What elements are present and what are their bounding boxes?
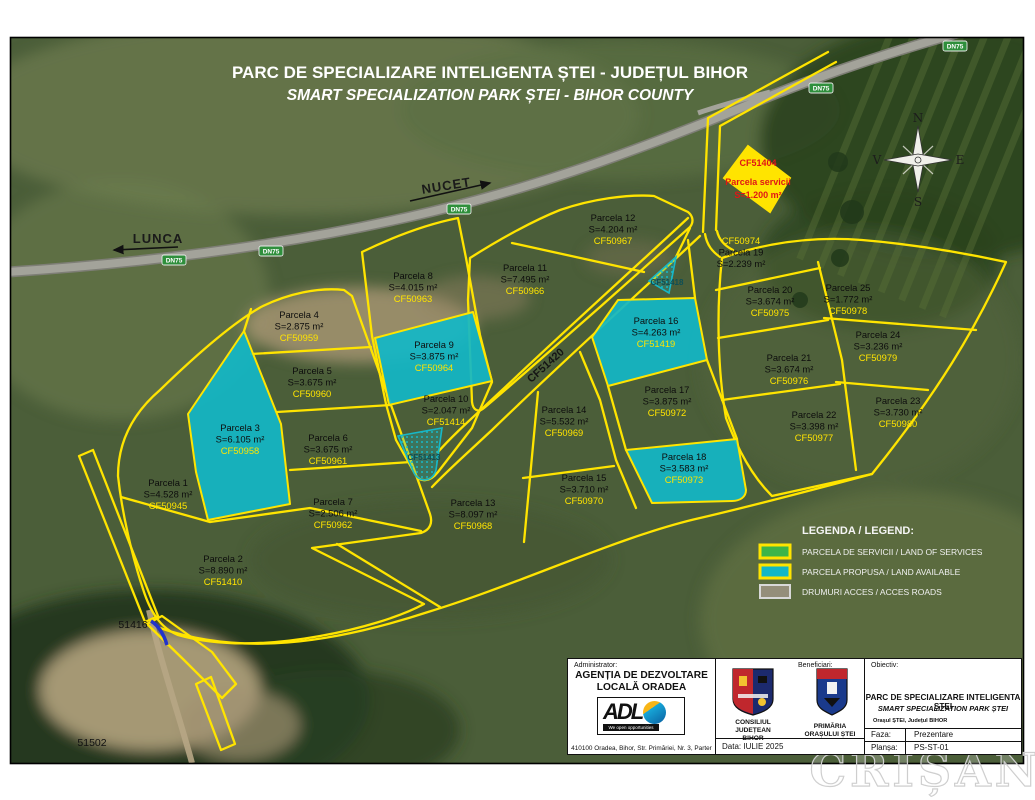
parcel-7-cf: CF50962 [314,519,353,530]
parcel-12-area: S=4.204 m² [589,224,638,235]
parcel-18-area: S=3.583 m² [660,463,709,474]
parcel-25-name: Parcela 25 [826,282,871,293]
parcel-18-cf: CF50973 [665,474,704,485]
adlo-logo: ADL We open opportunities [597,697,685,735]
parcel-6-cf: CF50961 [309,455,348,466]
legend-title: LEGENDA / LEGEND: [802,525,914,537]
date-label: Data: [722,742,741,751]
faza-label: Faza: [871,730,891,739]
parcel-13-area: S=8.097 m² [449,509,498,520]
parcel-16-cf: CF51419 [637,338,676,349]
parcel-2-area: S=8.890 m² [199,565,248,576]
parcel-16-area: S=4.263 m² [632,327,681,338]
dn75-badge-4: DN75 [809,83,833,93]
parcel-3-area: S=6.105 m² [216,434,265,445]
parcel-9-cf: CF50964 [415,362,454,373]
parcel-20-area: S=3.674 m² [746,296,795,307]
dn75-badge-2: DN75 [259,246,283,256]
parcel-10-name: Parcela 10 [424,393,469,404]
map-title-en: SMART SPECIALIZATION PARK ȘTEI - BIHOR C… [287,87,695,104]
parcel-12-cf: CF50967 [594,235,633,246]
service-parcel-area: S=1.200 m² [734,190,781,200]
parcel-6-name: Parcela 6 [308,432,348,443]
parcel-13-name: Parcela 13 [451,497,496,508]
parcel-23-area: S=3.730 m² [874,407,923,418]
administrator-name: AGENȚIA DE DEZVOLTARE LOCALĂ ORADEA [568,670,715,694]
parcel-4-area: S=2.875 m² [275,321,324,332]
parcel-21-name: Parcela 21 [767,352,812,363]
lunca-label: LUNCA [133,231,184,246]
legend-label-available: PARCELA PROPUSA / LAND AVAILABLE [802,567,961,577]
parcel-17-cf: CF50972 [648,407,687,418]
parcel-22-name: Parcela 22 [792,409,837,420]
parcel-6-area: S=3.675 m² [304,444,353,455]
parcel-5-area: S=3.675 m² [288,377,337,388]
parcel-8-area: S=4.015 m² [389,282,438,293]
parcel-4-cf: CF50959 [280,332,319,343]
parcel-25-area: S=1.772 m² [824,294,873,305]
dn75-badge-1: DN75 [162,255,186,265]
administrator-name-line2: LOCALĂ ORADEA [597,682,686,693]
objective-location: Orașul ȘTEI, Județul BIHOR [873,718,947,724]
beneficiary-cell: Beneficiari: CONSILIUL JUDEȚEAN BIHOR PR… [715,659,864,754]
dn75-badge-text: DN75 [947,44,964,51]
parcel-20-name: Parcela 20 [748,284,793,295]
parcel-12-name: Parcela 12 [591,212,636,223]
ref-51416: 51416 [118,619,147,631]
dn75-badge-5: DN75 [943,41,967,51]
parcel-5-name: Parcela 5 [292,365,332,376]
objective-label: Obiectiv: [871,662,898,669]
dn75-badge-text: DN75 [166,258,183,265]
parcel-10-cf: CF51414 [427,416,466,427]
parcel-4-name: Parcela 4 [279,309,319,320]
parcel-24-name: Parcela 24 [856,329,901,340]
parcel-17-name: Parcela 17 [645,384,690,395]
parcel-2-cf: CF51410 [204,576,243,587]
parcel-5-cf: CF50960 [293,388,332,399]
parcel-22-area: S=3.398 m² [790,421,839,432]
parcel-21-area: S=3.674 m² [765,364,814,375]
parcel-14-name: Parcela 14 [542,404,587,415]
parcel-11-cf: CF50966 [506,285,545,296]
parcel-19-name: Parcela 19 [719,247,764,258]
parcel-3-cf: CF50958 [221,445,260,456]
parcel-1-name: Parcela 1 [148,477,188,488]
compass-west: V [872,153,882,167]
parcel-15-cf: CF50970 [565,495,604,506]
ref-51502: 51502 [77,737,106,749]
parcel-3-name: Parcela 3 [220,422,260,433]
service-parcel-name: Parcela servicii [725,177,791,187]
compass-south: S [914,195,922,209]
date-value: IULIE 2025 [743,742,783,751]
plansa-label: Planșa: [871,743,898,752]
legend-swatch-roads [760,585,790,598]
parcel-2-name: Parcela 2 [203,553,243,564]
parcel-14-area: S=5.532 m² [540,416,589,427]
parcel-25-cf: CF50978 [829,305,868,316]
legend-swatch-available [760,565,790,578]
service-parcel-cf: CF51404 [739,158,776,168]
dn75-badge-text: DN75 [813,86,830,93]
plan-page: PARC DE SPECIALIZARE INTELIGENTA ȘTEI - … [0,0,1035,800]
parcel-18-name: Parcela 18 [662,451,707,462]
plansa-value: PS-ST-01 [905,742,1021,755]
parcel-22-cf: CF50977 [795,432,834,443]
parcel-9-name: Parcela 9 [414,339,454,350]
administrator-label: Administrator: [574,662,617,669]
parcel-13-cf: CF50968 [454,520,493,531]
stei-coat-of-arms [816,668,848,716]
date-row: Data: IULIE 2025 [716,738,864,754]
parcel-14-cf: CF50969 [545,427,584,438]
parcel-11-area: S=7.495 m² [501,274,550,285]
compass-east: E [956,153,965,167]
bihor-coat-of-arms [732,668,774,716]
map-title-ro: PARC DE SPECIALIZARE INTELIGENTA ȘTEI - … [232,63,748,82]
administrator-name-line1: AGENȚIA DE DEZVOLTARE [575,670,708,681]
legend-label-roads: DRUMURI ACCES / ACCES ROADS [802,587,942,597]
adlo-logo-globe-icon [643,701,666,724]
dn75-badge-text: DN75 [451,207,468,214]
parcel-1-area: S=4.528 m² [144,489,193,500]
hatched-parcel-cf-1: CF51413 [408,453,441,462]
dn75-badge-3: DN75 [447,204,471,214]
parcel-15-area: S=3.710 m² [560,484,609,495]
adlo-logo-text: ADL [603,700,642,724]
parcel-10-area: S=2.047 m² [422,405,471,416]
administrator-cell: Administrator: AGENȚIA DE DEZVOLTARE LOC… [568,659,715,754]
faza-row: Faza: Prezentare [865,728,1021,741]
parcel-16-name: Parcela 16 [634,315,679,326]
parcel-9-area: S=3.875 m² [410,351,459,362]
parcel-19-cf: CF50974 [722,235,761,246]
objective-title-en: SMART SPECIALIZATION PARK ȘTEI [865,704,1021,713]
legend-swatch-services [760,545,790,558]
title-block: Administrator: AGENȚIA DE DEZVOLTARE LOC… [567,658,1022,755]
parcel-23-cf: CF50980 [879,418,918,429]
parcel-24-area: S=3.236 m² [854,341,903,352]
parcel-1-cf: CF50945 [149,500,188,511]
adlo-logo-tagline: We open opportunities [603,724,659,731]
parcel-21-cf: CF50976 [770,375,809,386]
objective-cell: Obiectiv: PARC DE SPECIALIZARE INTELIGEN… [864,659,1021,754]
parcel-8-name: Parcela 8 [393,270,433,281]
parcel-17-area: S=3.875 m² [643,396,692,407]
compass-north: N [913,111,924,125]
parcel-15-name: Parcela 15 [562,472,607,483]
parcel-19-area: S=2.239 m² [717,258,766,269]
administrator-address: 410100 Oradea, Bihor, Str. Primăriei, Nr… [568,745,715,752]
parcel-20-cf: CF50975 [751,307,790,318]
beneficiary-2-name: PRIMĂRIA ORAȘULUI ȘTEI [795,723,865,739]
legend-label-services: PARCELA DE SERVICII / LAND OF SERVICES [802,547,983,557]
parcel-8-cf: CF50963 [394,293,433,304]
parcel-7-name: Parcela 7 [313,496,353,507]
dn75-badge-text: DN75 [263,249,280,256]
plansa-row: Planșa: PS-ST-01 [865,741,1021,754]
hatched-parcel-cf-2: CF51418 [651,278,684,287]
parcel-11-name: Parcela 11 [503,262,547,273]
parcel-7-area: S=2.506 m² [309,508,358,519]
parcel-23-name: Parcela 23 [876,395,921,406]
parcel-24-cf: CF50979 [859,352,898,363]
